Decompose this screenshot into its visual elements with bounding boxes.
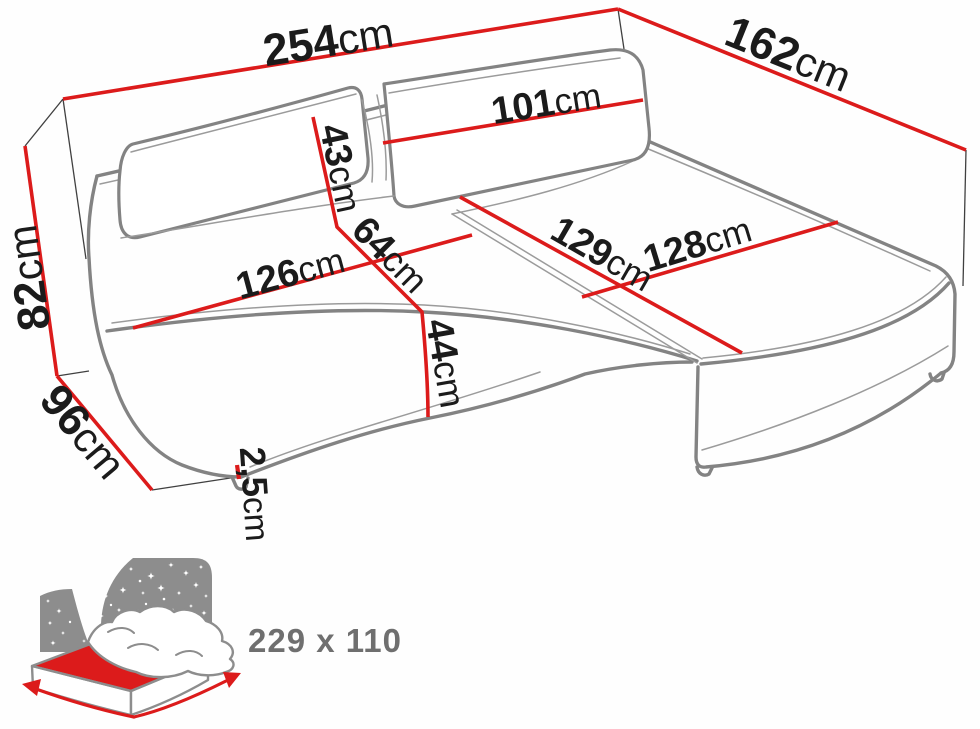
label-seat-width: 126cm: [232, 239, 350, 308]
seat-front-crease: [250, 372, 540, 467]
bed-width-arrowhead: [22, 679, 41, 696]
extension-line-right: [963, 150, 966, 286]
extension-line-left-corner: [25, 99, 63, 146]
label-total-width: 254cm: [259, 5, 396, 76]
label-back-height: 82cm: [0, 222, 60, 334]
seat-front-top-edge: [107, 311, 697, 361]
chaise-bottom-edge: [696, 367, 941, 467]
sleeping-function-icon: 229 x 110: [22, 558, 402, 717]
extension-line-left-top: [63, 99, 86, 259]
label-seat-height: 44cm: [417, 316, 474, 411]
label-chaise-width: 128cm: [639, 208, 757, 280]
sofa-dimension-diagram: 254cm 162cm 82cm 96cm 43cm 101cm 126cm 6…: [0, 0, 980, 729]
extension-line-bottom-left: [57, 371, 89, 376]
night-backdrop-strip: [40, 589, 92, 652]
label-chaise-side-depth: 162cm: [719, 5, 859, 101]
diagram-canvas: 254cm 162cm 82cm 96cm 43cm 101cm 126cm 6…: [0, 0, 980, 729]
sleeping-area-size-label: 229 x 110: [248, 622, 402, 659]
extension-line-front-foot: [152, 477, 237, 490]
label-leg-height: 2,5cm: [232, 445, 280, 542]
extension-line-apex: [618, 9, 624, 49]
label-side-depth: 96cm: [30, 375, 137, 489]
label-seat-depth: 64cm: [343, 209, 436, 302]
